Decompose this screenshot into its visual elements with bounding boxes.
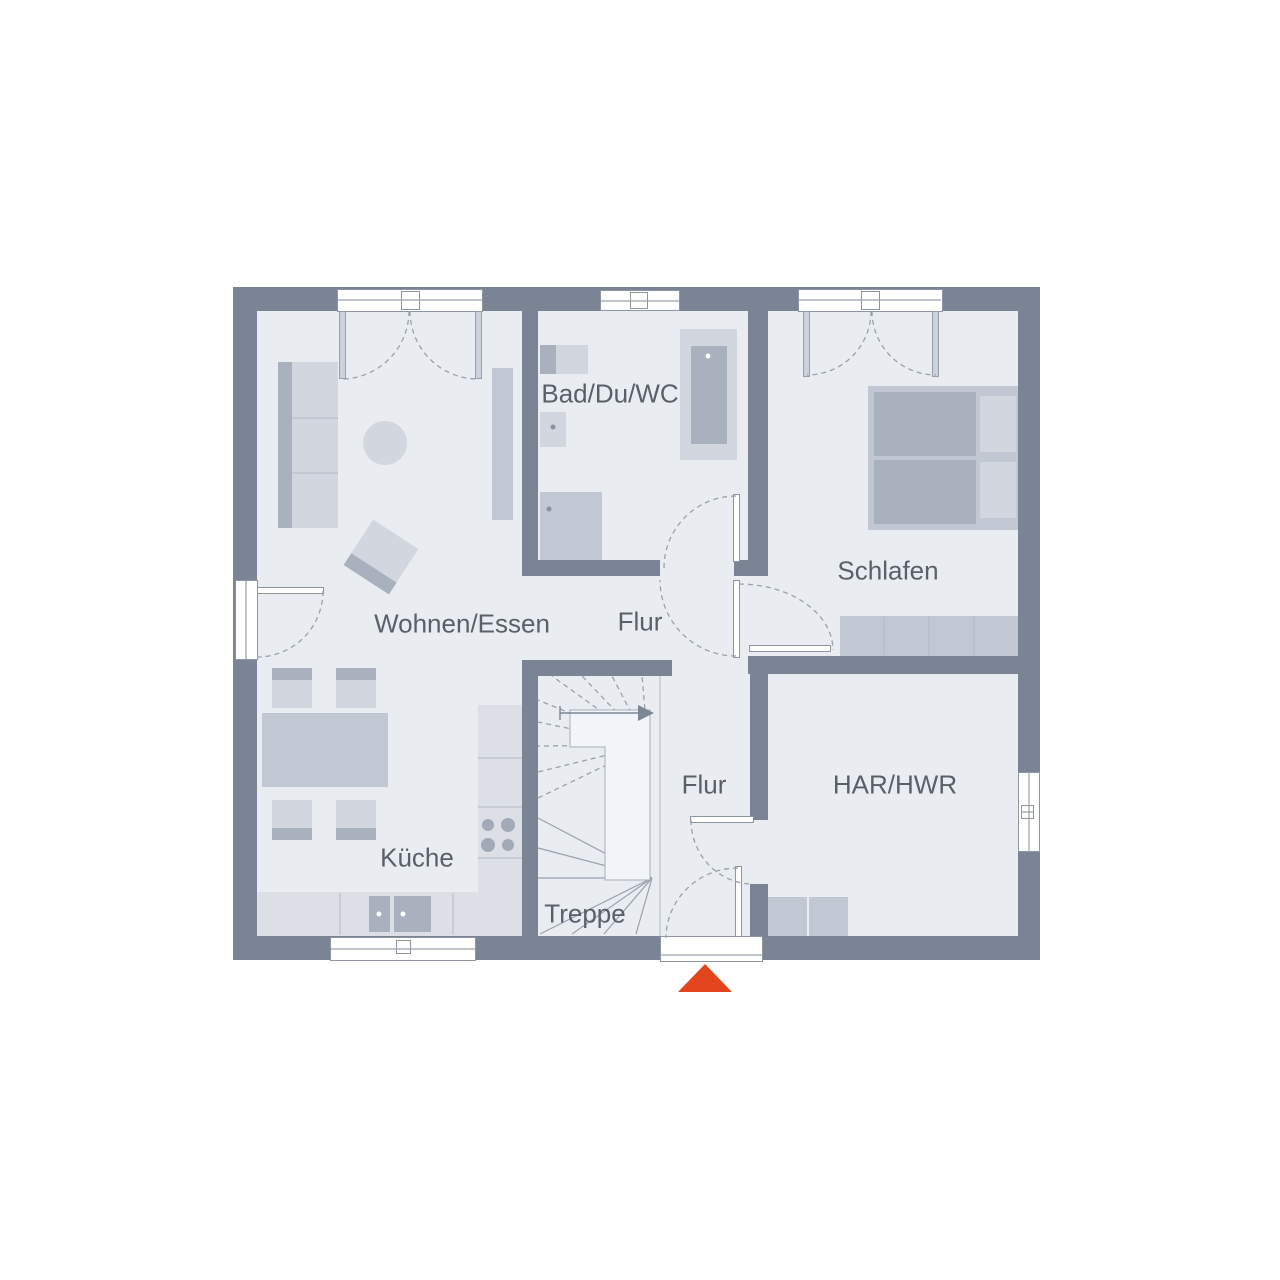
toilet-dot — [551, 425, 556, 430]
floorplan-page: Bad/Du/WC Schlafen Wohnen/Essen Flur Flu… — [0, 0, 1280, 1280]
cooktop-icon — [481, 818, 515, 852]
shower-drain-dot — [547, 507, 552, 512]
staircase — [538, 676, 660, 936]
sofa-seat-lines — [292, 418, 338, 473]
bedroom-door-swing-arc — [660, 580, 736, 656]
window-swing-arc — [341, 311, 409, 379]
room-label-schlafen: Schlafen — [837, 555, 938, 586]
bathtub-drain-dot — [706, 354, 711, 359]
bath-door-swing-arc — [664, 496, 736, 568]
window-swing-arc — [807, 311, 871, 375]
window-swing-arc — [872, 311, 936, 375]
room-label-flur-lower: Flur — [682, 769, 727, 800]
appliance-knob-dot — [401, 912, 406, 917]
room-label-kueche: Küche — [380, 842, 454, 873]
plan-linework — [0, 0, 1280, 1280]
wardrobe-divider-lines — [884, 617, 974, 655]
room-label-flur-upper: Flur — [618, 606, 663, 637]
room-label-treppe: Treppe — [544, 898, 625, 929]
utility-door-swing-arc — [691, 820, 753, 884]
bedroom-door-swing-arc — [739, 584, 833, 650]
room-label-wohnen-essen: Wohnen/Essen — [374, 608, 550, 639]
entrance-marker-triangle-up-icon — [678, 964, 732, 992]
window-swing-arc — [410, 311, 477, 379]
side-door-swing-arc — [257, 591, 323, 657]
room-label-har-hwr: HAR/HWR — [833, 769, 957, 800]
stairwell-void — [570, 710, 650, 880]
room-label-bad-du-wc: Bad/Du/WC — [541, 378, 678, 409]
appliance-knob-dot — [377, 912, 382, 917]
